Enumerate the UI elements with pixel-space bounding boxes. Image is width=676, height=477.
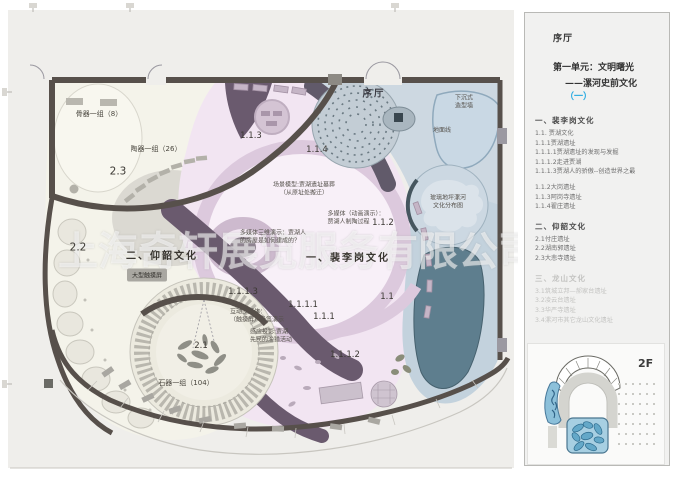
scene-model-label: 场景模型:贾湖遗址墓葬 （从原址处搬迁） [273,182,335,199]
thumbnail-drawing: 2F [528,344,664,464]
floor-thumbnail: 2F [527,343,665,465]
projection-label: 感应投影:贾湖 先民的渔猎活动 [250,329,292,346]
section-item: 1.1.4翟庄遗址 [535,202,661,212]
bone-room [54,84,142,192]
flute-media-label: 互动多媒体： （触摸屏）骨笛演示 [230,309,284,326]
unit-title-line1: 第一单元：文明曙光 [553,60,661,73]
bone-group-label: 骨器一组（8） [76,110,122,120]
section-peiligang: 一、裴李岗文化 1.1. 贾湖文化 1.1.1贾湖遗址 1.1.1.1贾湖遗址的… [531,115,661,212]
section-heading: 三、龙山文化 [535,273,661,284]
section-item: 2.3大悲寺遗址 [535,254,661,264]
zone-1-1-label: 1.1 [380,292,394,304]
section-item: 2.2湖南郭遗址 [535,244,661,254]
zone-1-1-3-label: 1.1.3 [240,131,262,143]
scene-display [255,100,289,134]
section-heading: 二、仰韶文化 [535,221,661,232]
stone-group-label: 石器一组（104） [158,379,213,389]
section-item: 1.1.1贾湖遗址 [535,139,661,149]
pottery-group-label: 陶器一组（26） [131,145,182,155]
thumb-stub [548,426,557,448]
zone-1-1-1-2-label: 1.1.1.2 [330,350,360,362]
section-item: 3.1筑城立邦—郝家台遗址 [535,287,661,297]
section-item: 1.1.1.1贾湖遗址的发现与发掘 [535,148,661,158]
zone-2-2-label: 2.2 [70,241,87,256]
section-heading: 一、裴李岗文化 [535,115,661,126]
section-item: 3.2凌云台遗址 [535,296,661,306]
section-item: 1.1.1.3贾湖人的骄傲--创造世界之最 [535,167,661,177]
zone-1-1-4-label: 1.1.4 [306,145,328,157]
zone-2-1-label: 2.1 [194,341,208,353]
touchscreen-chip: 大型触摸屏 [127,269,167,282]
zone-1-1-1-label: 1.1.1 [313,312,335,324]
zone-1-1-2-label: 1.1.2 [372,218,394,230]
section-item: 2.1付庄遗址 [535,235,661,245]
section-item: 1.1.1.2走进贾湖 [535,158,661,168]
section-item: 3.3华严寺遗址 [535,306,661,316]
sidebar-hall-label: 序厅 [553,31,661,44]
hall-label: 序厅 [362,87,385,100]
floor-plan: 上海奇轩展览服务有限公司 序厅 下沉式 造型墙 地面线 玻璃地坪漯河 文化分布图… [0,0,518,477]
unit-title-line2: ——漯河史前文化（一） [565,76,661,102]
zone-1-1-1-1-label: 1.1.1.1 [288,300,318,312]
glass-floor-label: 玻璃地坪漯河 文化分布图 [430,195,466,212]
zone-2-3-label: 2.3 [110,165,127,180]
section-item: 1.1.2大岗遗址 [535,183,661,193]
media-3d-label: 多媒体三维演示：贾湖人 的房屋是如何建成的？ [240,230,306,247]
floor-level-label: 2F [638,357,653,370]
section-yangshao: 二、仰韶文化 2.1付庄遗址 2.2湖南郭遗址 2.3大悲寺遗址 [531,221,661,264]
zone-1-1-1-3-label: 1.1.1.3 [228,287,258,299]
section-item: 3.4漯河市其它龙山文化遗址 [535,316,661,326]
section-item: 1.1.3阿岗寺遗址 [535,193,661,203]
sunken-wall-label: 下沉式 造型墙 [455,95,473,112]
section-item: 1.1. 贾湖文化 [535,129,661,139]
ground-line-label: 地面线 [433,127,451,135]
unit-title-paren: （一） [565,92,592,102]
section-longshan: 三、龙山文化 3.1筑城立邦—郝家台遗址 3.2凌云台遗址 3.3华严寺遗址 3… [531,273,661,325]
peiligang-title: 一、裴李岗文化 [306,252,390,266]
thumb-grid [618,384,656,444]
thumb-bottom-gallery [567,418,608,453]
yangshao-title: 二、仰韶文化 [126,250,198,264]
